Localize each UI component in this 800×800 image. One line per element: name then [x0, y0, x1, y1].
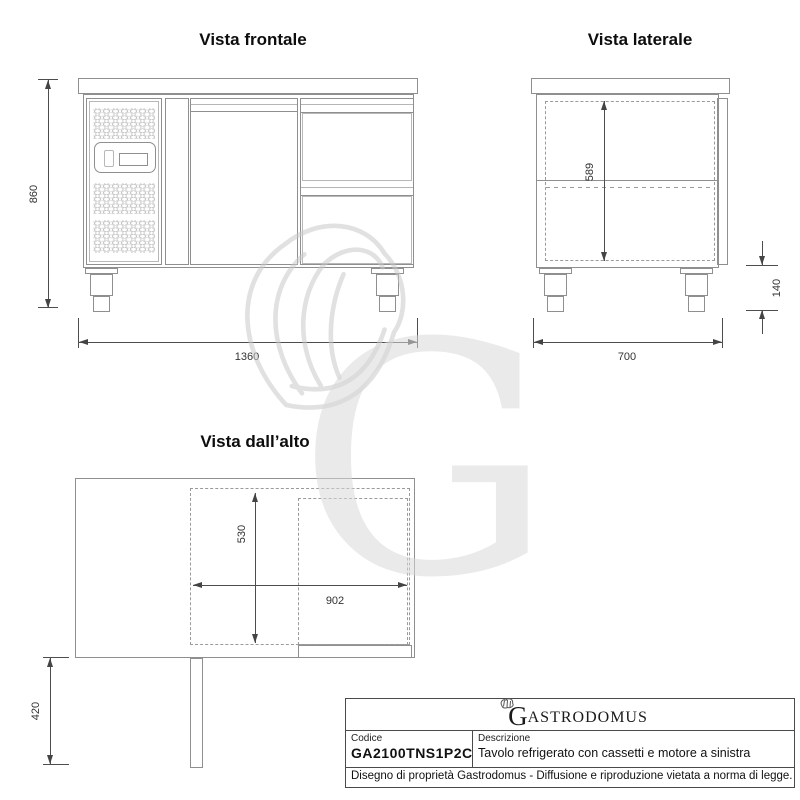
arrowhead: [45, 299, 51, 308]
filler-strip: [165, 98, 189, 265]
side-worktop: [531, 78, 730, 94]
side-back-panel: [717, 98, 728, 265]
drawer2-rail-line: [301, 187, 413, 188]
door-handle-rail-line: [191, 111, 297, 112]
leg-body: [685, 274, 708, 296]
dimension-line: [50, 658, 51, 764]
dimension-value: 860: [27, 174, 41, 214]
extension-tick: [746, 265, 778, 266]
dimension-line: [48, 80, 49, 308]
chef-hat-icon: [499, 697, 515, 716]
drawer-front-strip: [298, 645, 412, 658]
brand-name: ASTRODOMUS: [528, 707, 648, 729]
leg-foot: [379, 296, 396, 312]
description-value: Tavolo refrigerato con cassetti e motore…: [478, 746, 750, 760]
description-label: Descrizione: [478, 733, 530, 744]
interior-outline-dashed: [545, 101, 715, 261]
door-panel: [190, 98, 298, 265]
arrowhead: [79, 339, 88, 345]
dimension-line: [534, 342, 722, 343]
legal-notice: Disegno di proprietà Gastrodomus - Diffu…: [351, 770, 793, 782]
leg-body: [90, 274, 113, 296]
arrowhead: [759, 310, 765, 319]
arrowhead: [252, 493, 258, 502]
side-view-title: Vista laterale: [530, 30, 750, 50]
ventilation-grille-bottom: [93, 220, 155, 253]
arrowhead: [47, 755, 53, 764]
leg-foot: [688, 296, 705, 312]
arrowhead: [534, 339, 543, 345]
code-value: GA2100TNS1P2C: [351, 745, 473, 761]
dimension-line: [193, 585, 407, 586]
drawer2-front: [302, 196, 412, 264]
drawer-unit-outline-dashed: [298, 498, 408, 645]
door-handle-rail-line: [191, 104, 297, 105]
dimension-line: [79, 342, 418, 343]
arrowhead: [45, 80, 51, 89]
front-view-title: Vista frontale: [143, 30, 363, 50]
extension-tick: [43, 764, 69, 765]
leg-body: [544, 274, 567, 296]
ventilation-grille-top: [93, 108, 155, 139]
arrowhead: [47, 658, 53, 667]
dimension-value: 530: [235, 514, 249, 554]
title-block-divider: [345, 767, 795, 768]
dimension-value: 589: [583, 152, 597, 192]
top-view-title: Vista dall’alto: [145, 432, 365, 452]
code-label: Codice: [351, 733, 382, 744]
ventilation-grille-middle: [93, 183, 155, 214]
arrowhead: [252, 634, 258, 643]
open-door-leaf: [190, 658, 203, 768]
dimension-line: [255, 493, 256, 643]
arrowhead: [408, 339, 417, 345]
arrowhead: [193, 582, 202, 588]
arrowhead: [601, 252, 607, 261]
dimension-value: 902: [315, 594, 355, 608]
dimension-value: 1360: [227, 350, 267, 364]
drawer1-rail-line: [301, 104, 413, 105]
extension-tick: [722, 318, 723, 348]
title-block-divider: [345, 730, 795, 731]
dimension-value: 700: [607, 350, 647, 364]
arrowhead: [601, 101, 607, 110]
drawer1-front: [302, 113, 412, 181]
arrowhead: [398, 582, 407, 588]
leg-body: [376, 274, 399, 296]
arrowhead: [759, 256, 765, 265]
extension-tick: [417, 318, 418, 348]
arrowhead: [713, 339, 722, 345]
technical-drawing-page: Vista frontale: [0, 0, 800, 800]
control-display: [119, 153, 148, 166]
shelf-dashed-line: [546, 187, 714, 188]
front-worktop: [78, 78, 418, 94]
dimension-value: 420: [29, 691, 43, 731]
dimension-line: [604, 101, 605, 261]
dimension-value: 140: [770, 268, 784, 308]
leg-foot: [93, 296, 110, 312]
brand-logo: G ASTRODOMUS: [345, 699, 795, 729]
control-button: [104, 150, 114, 167]
shelf-line: [537, 180, 718, 181]
leg-foot: [547, 296, 564, 312]
